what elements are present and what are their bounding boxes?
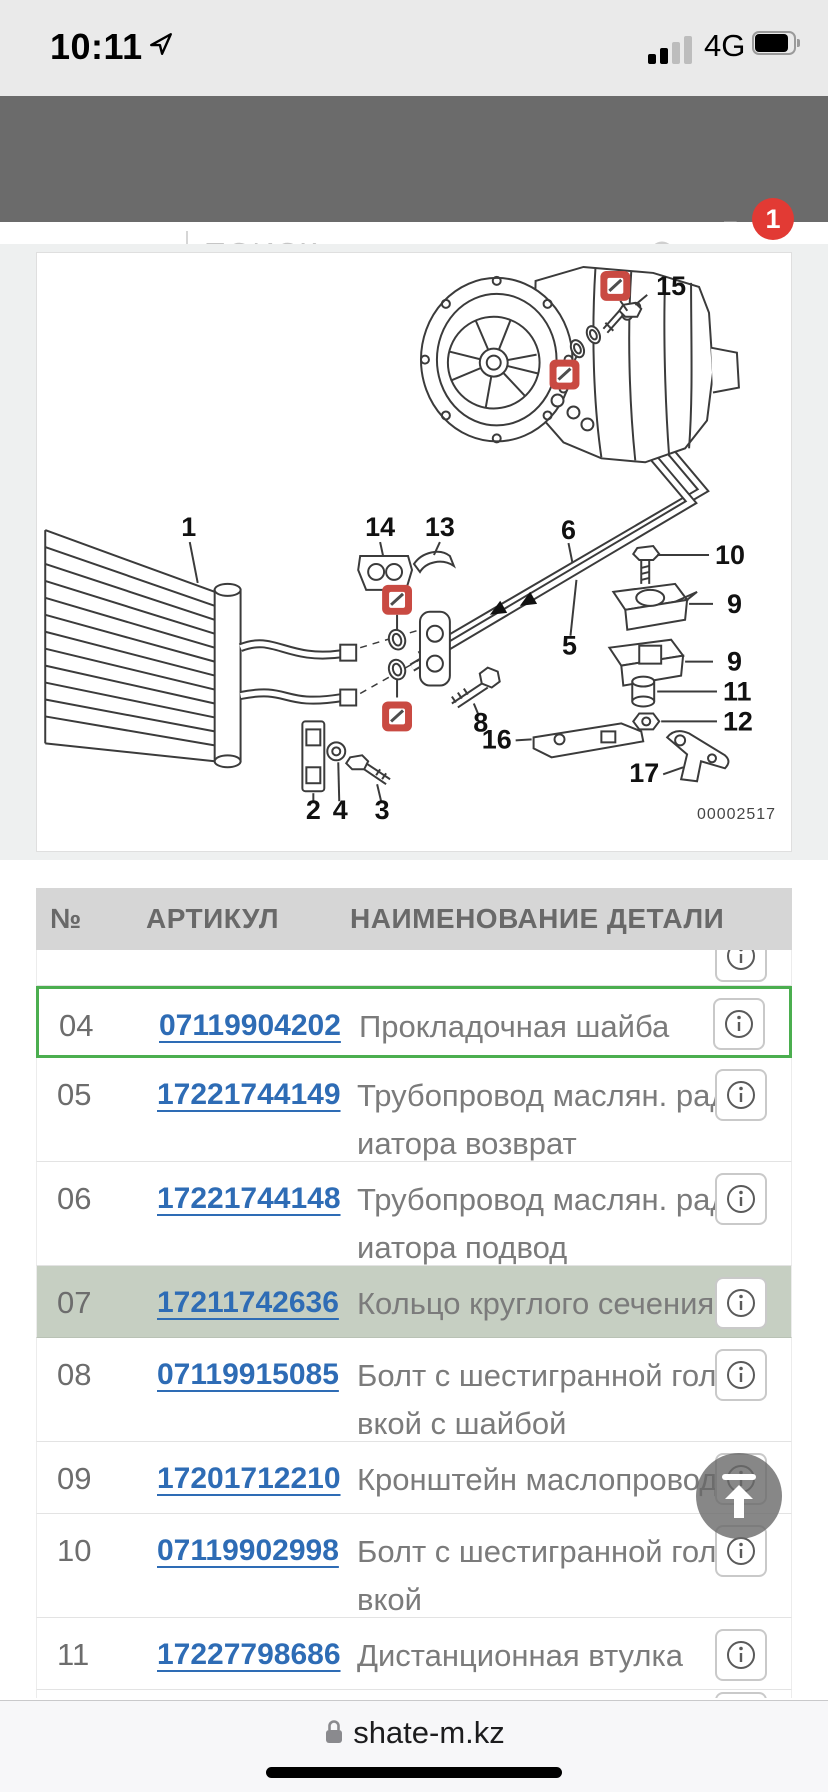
part-number-cell: 10 xyxy=(57,1528,91,1574)
article-cell: 17211742636 xyxy=(157,1280,339,1326)
hotspot-marker-icon[interactable] xyxy=(600,271,630,301)
clock: 10:11 xyxy=(50,26,143,68)
article-cell: 07119915085 xyxy=(157,1352,339,1398)
part-name-cell: Болт с шестигранной головкой с шайбой xyxy=(357,1352,747,1448)
part-number-cell: 11 xyxy=(57,1632,89,1678)
article-cell: 07119902998 xyxy=(157,1528,339,1574)
scroll-to-top-button[interactable] xyxy=(696,1453,782,1539)
article-link[interactable]: 07119902998 xyxy=(157,1534,339,1567)
callout-6: 6 xyxy=(561,515,576,545)
home-indicator[interactable] xyxy=(266,1767,562,1778)
info-button[interactable] xyxy=(713,998,765,1050)
callout-1: 1 xyxy=(181,512,196,542)
info-button[interactable] xyxy=(715,1629,767,1681)
hotspot-marker-icon[interactable] xyxy=(382,585,412,615)
location-services-icon xyxy=(148,31,174,62)
part-name-cell: Кронштейн маслопровода xyxy=(357,1456,747,1504)
callout-2: 2 xyxy=(306,795,321,825)
article-link[interactable]: 17211742636 xyxy=(157,1286,339,1319)
cart-badge: 1 xyxy=(752,198,794,240)
callout-3: 3 xyxy=(375,795,390,825)
part-name-cell: Трубопровод маслян. радиатора подвод xyxy=(357,1176,747,1272)
cellular-signal-icon xyxy=(648,34,692,64)
table-row[interactable]: 06 17221744148 Трубопровод маслян. радиа… xyxy=(36,1162,792,1266)
callout-9b: 9 xyxy=(727,647,742,677)
part-number-cell: 08 xyxy=(57,1352,91,1398)
info-button[interactable] xyxy=(715,1173,767,1225)
column-header-num: № xyxy=(50,888,82,950)
info-button[interactable] xyxy=(715,1349,767,1401)
transmission-drawing xyxy=(421,267,739,462)
article-cell: 17221744149 xyxy=(157,1072,341,1118)
article-link[interactable]: 17221744148 xyxy=(157,1182,341,1215)
url-text: shate-m.kz xyxy=(353,1715,505,1750)
callout-14: 14 xyxy=(365,512,395,542)
article-link[interactable]: 07119915085 xyxy=(157,1358,339,1391)
table-row[interactable]: 08 07119915085 Болт с шестигранной голов… xyxy=(36,1338,792,1442)
table-header: № АРТИКУЛ НАИМЕНОВАНИЕ ДЕТАЛИ xyxy=(36,888,792,950)
article-cell: 17201712210 xyxy=(157,1456,341,1502)
part-name-cell: Болт с шестигранной головкой xyxy=(357,1528,747,1624)
table-row-partial xyxy=(36,950,792,986)
status-bar: 10:11 4G xyxy=(0,0,828,96)
part-number-cell: 07 xyxy=(57,1280,91,1326)
diagram-code: 00002517 xyxy=(697,806,776,823)
part-name-cell: Прокладочная шайба xyxy=(359,1003,749,1051)
scroll-top-icon xyxy=(718,1472,760,1520)
callout-9a: 9 xyxy=(727,589,742,619)
table-row[interactable]: 04 07119904202 Прокладочная шайба xyxy=(36,986,792,1058)
hotspot-marker-icon[interactable] xyxy=(382,702,412,732)
info-button[interactable] xyxy=(715,1277,767,1329)
parts-table: № АРТИКУЛ НАИМЕНОВАНИЕ ДЕТАЛИ 04 0711990… xyxy=(36,888,792,1698)
table-row[interactable]: 05 17221744149 Трубопровод маслян. радиа… xyxy=(36,1058,792,1162)
network-type-label: 4G xyxy=(704,28,745,64)
article-cell: 17227798686 xyxy=(157,1632,341,1678)
table-row[interactable]: 07 17211742636 Кольцо круглого сечения xyxy=(36,1266,792,1338)
article-link[interactable]: 17221744149 xyxy=(157,1078,341,1111)
article-cell: 07119904202 xyxy=(159,1003,341,1049)
callout-16: 16 xyxy=(482,724,512,754)
info-button[interactable] xyxy=(715,950,767,982)
table-row[interactable]: 09 17201712210 Кронштейн маслопровода xyxy=(36,1442,792,1514)
article-link[interactable]: 17227798686 xyxy=(157,1638,341,1671)
callout-17: 17 xyxy=(629,758,659,788)
address-bar[interactable]: shate-m.kz xyxy=(0,1715,828,1751)
info-button[interactable] xyxy=(715,1069,767,1121)
column-header-name: НАИМЕНОВАНИЕ ДЕТАЛИ xyxy=(350,888,724,950)
parts-diagram: 1 2 3 4 5 6 8 9 9 10 11 12 13 14 15 16 1… xyxy=(36,252,792,852)
article-link[interactable]: 07119904202 xyxy=(159,1009,341,1042)
callout-12: 12 xyxy=(723,706,753,736)
article-cell: 17221744148 xyxy=(157,1176,341,1222)
part-number-cell: 05 xyxy=(57,1072,91,1118)
part-number-cell: 04 xyxy=(59,1003,93,1049)
article-link[interactable]: 17201712210 xyxy=(157,1462,341,1495)
browser-bottom-bar: shate-m.kz xyxy=(0,1700,828,1792)
part-name-cell: Кольцо круглого сечения xyxy=(357,1280,747,1328)
part-number-cell: 06 xyxy=(57,1176,91,1222)
hotspot-marker-icon[interactable] xyxy=(550,360,580,390)
table-row[interactable]: 10 07119902998 Болт с шестигранной голов… xyxy=(36,1514,792,1618)
callout-15: 15 xyxy=(656,271,686,301)
table-row[interactable]: 11 17227798686 Дистанционная втулка xyxy=(36,1618,792,1690)
table-row-partial xyxy=(36,1690,792,1698)
callout-13: 13 xyxy=(425,512,455,542)
part-number-cell: 09 xyxy=(57,1456,91,1502)
phone-screen: 10:11 4G xyxy=(0,0,828,1792)
info-button[interactable] xyxy=(715,1692,767,1698)
callout-4: 4 xyxy=(333,795,348,825)
app-header: 1 xyxy=(0,96,828,222)
part-name-cell: Дистанционная втулка xyxy=(357,1632,747,1680)
part-name-cell: Трубопровод маслян. радиатора возврат xyxy=(357,1072,747,1168)
column-header-article: АРТИКУЛ xyxy=(146,888,279,950)
callout-11: 11 xyxy=(723,677,751,707)
lock-icon xyxy=(323,1718,345,1746)
callout-10: 10 xyxy=(715,540,745,570)
callout-5: 5 xyxy=(562,631,577,661)
battery-icon xyxy=(752,31,800,55)
